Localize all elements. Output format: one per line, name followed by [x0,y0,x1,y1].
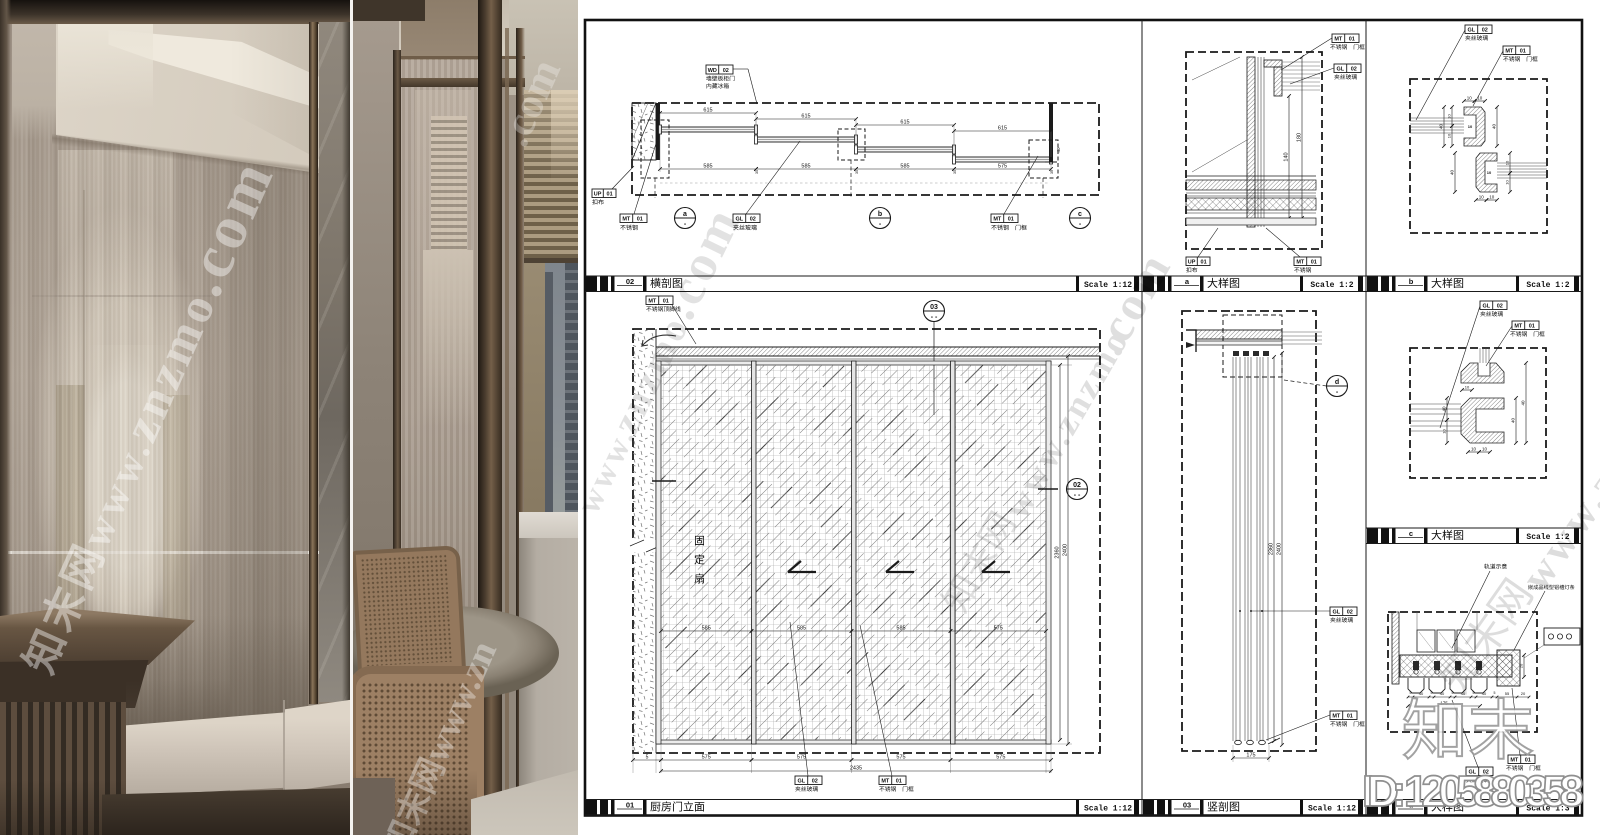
svg-text:5: 5 [1452,691,1454,695]
svg-text:585: 585 [896,626,905,632]
svg-text:40: 40 [1439,124,1444,130]
svg-text:5: 5 [646,755,649,761]
svg-text:MT: MT [1510,757,1519,763]
svg-text:10: 10 [1468,124,1473,129]
svg-text:Scale 1:12: Scale 1:12 [1084,805,1132,814]
svg-text:2400: 2400 [1277,543,1283,555]
svg-text:Scale 1:2: Scale 1:2 [1310,281,1353,290]
svg-text:35: 35 [855,170,859,174]
svg-text:02: 02 [723,68,729,74]
svg-text:585: 585 [900,164,909,170]
svg-text:180: 180 [1297,133,1303,142]
svg-text:03: 03 [930,304,938,311]
svg-text:585: 585 [797,626,806,632]
svg-text:01: 01 [637,216,643,222]
svg-text:40: 40 [1511,418,1516,424]
svg-text:02: 02 [1497,303,1503,309]
svg-text:MT: MT [622,216,631,222]
svg-text:575: 575 [702,755,711,761]
svg-text:40: 40 [1440,691,1445,696]
svg-text:10: 10 [1442,429,1447,434]
svg-text:- -: - - [931,314,938,321]
svg-text:GL: GL [1482,303,1490,309]
svg-text:575: 575 [996,755,1005,761]
svg-text:40: 40 [1492,124,1497,130]
svg-text:615: 615 [900,120,909,126]
svg-text:585: 585 [801,164,810,170]
svg-text:GL: GL [1336,66,1344,72]
svg-text:615: 615 [801,114,810,120]
svg-text:10: 10 [1505,160,1510,165]
svg-text:01: 01 [1349,36,1355,42]
svg-text:10: 10 [1489,195,1495,200]
svg-text:d: d [1335,379,1339,386]
svg-text:- -: - - [1074,492,1081,499]
svg-text:35: 35 [755,170,759,174]
svg-text:02: 02 [1073,482,1081,489]
svg-text:01: 01 [896,778,902,784]
svg-text:40: 40 [1419,691,1424,696]
svg-text:01: 01 [626,801,634,810]
svg-text:35: 35 [1050,170,1054,174]
svg-text:02: 02 [750,216,756,222]
svg-text:5: 5 [1494,691,1496,695]
svg-text:02: 02 [812,778,818,784]
svg-text:175: 175 [1246,753,1255,759]
svg-text:585: 585 [702,626,711,632]
svg-text:GL: GL [1332,609,1340,615]
svg-text:40: 40 [1056,147,1061,153]
svg-text:40: 40 [1482,691,1487,696]
svg-text:c: c [1409,529,1413,538]
svg-text:10: 10 [1482,447,1488,452]
svg-text:10: 10 [1477,96,1483,101]
svg-text:01: 01 [1347,713,1353,719]
svg-text:01: 01 [1520,48,1526,54]
svg-text:01: 01 [1008,216,1014,222]
svg-text:MT: MT [1334,36,1343,42]
svg-text:10: 10 [1447,133,1452,138]
svg-text:03: 03 [1183,801,1191,810]
svg-text:c: c [1078,211,1082,218]
svg-text:575: 575 [998,164,1007,170]
svg-text:575: 575 [797,755,806,761]
svg-text:40: 40 [1521,400,1526,406]
svg-text:02: 02 [626,277,634,286]
svg-text:2360: 2360 [1055,546,1061,558]
svg-text:5: 5 [1431,691,1433,695]
svg-text:GL: GL [1467,27,1475,33]
svg-text:2360: 2360 [1269,543,1275,555]
svg-text:575: 575 [994,626,1003,632]
svg-text:10: 10 [1487,170,1492,175]
svg-text:5: 5 [1410,691,1412,695]
svg-text:5: 5 [1473,691,1475,695]
svg-text:10: 10 [1467,96,1473,101]
svg-text:MT: MT [1505,48,1514,54]
svg-text:40: 40 [1450,170,1455,176]
svg-text:GL: GL [797,778,805,784]
svg-text:UP: UP [594,191,602,197]
svg-text:b: b [878,211,882,218]
svg-text:10: 10 [1471,447,1477,452]
svg-text:55: 55 [1505,691,1510,696]
svg-text:01: 01 [1201,259,1207,265]
svg-text:UP: UP [1188,259,1196,265]
svg-text:MT: MT [1296,259,1305,265]
svg-text:a: a [683,211,687,218]
svg-text:WD: WD [708,68,717,74]
svg-text:01: 01 [607,191,613,197]
svg-text:ID: 1205880358: ID: 1205880358 [1362,767,1584,816]
svg-text:01: 01 [1311,259,1317,265]
svg-text:615: 615 [998,126,1007,132]
svg-text:01: 01 [1529,323,1535,329]
svg-text:10: 10 [1447,114,1452,119]
svg-text:10: 10 [1505,180,1510,185]
svg-text:40: 40 [1442,406,1447,412]
svg-text:02: 02 [1347,609,1353,615]
svg-text:20: 20 [1521,691,1526,696]
svg-text:MT: MT [993,216,1002,222]
svg-text:b: b [1409,277,1414,286]
svg-text:Scale 1:12: Scale 1:12 [1308,805,1356,814]
svg-text:02: 02 [1482,27,1488,33]
svg-text:02: 02 [1351,66,1357,72]
svg-text:35: 35 [953,170,957,174]
svg-text:20: 20 [1519,663,1524,668]
svg-text:10: 10 [1479,195,1485,200]
svg-text:MT: MT [881,778,890,784]
svg-text:2400: 2400 [1063,544,1069,556]
svg-text:2435: 2435 [850,766,862,772]
svg-text:140: 140 [1284,152,1290,161]
svg-text:10: 10 [1465,385,1470,390]
svg-text:615: 615 [703,108,712,114]
svg-text:MT: MT [1332,713,1341,719]
svg-text:575: 575 [896,755,905,761]
svg-text:01: 01 [1525,757,1531,763]
svg-text:Scale 1:2: Scale 1:2 [1526,281,1569,290]
svg-text:585: 585 [703,164,712,170]
svg-text:MT: MT [1514,323,1523,329]
